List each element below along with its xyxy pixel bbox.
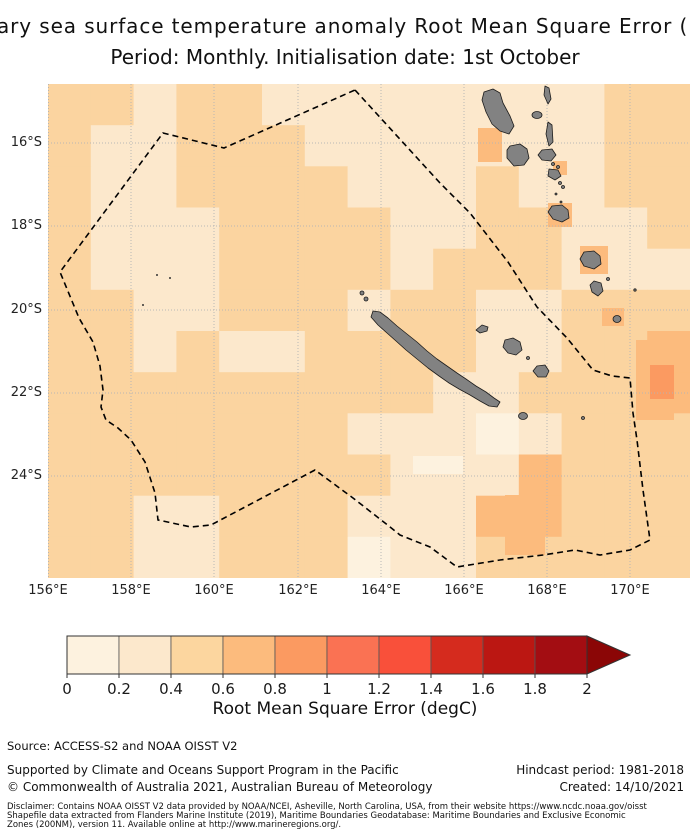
island-isle-of-pines	[519, 413, 528, 420]
lon-tick-170e: 170°E	[598, 583, 662, 599]
island-walpole	[582, 417, 585, 420]
island-aneityum	[613, 316, 621, 323]
lat-tick-16s: 16°S	[0, 135, 42, 151]
lat-tick-18s: 18°S	[0, 218, 42, 234]
svg-text:0.4: 0.4	[159, 680, 183, 698]
lon-tick-160e: 160°E	[182, 583, 246, 599]
lon-tick-168e: 168°E	[515, 583, 579, 599]
svg-text:1: 1	[322, 680, 332, 698]
created-date-text: Created: 14/10/2021	[559, 780, 684, 794]
colorbar-extend-arrow	[587, 636, 630, 674]
lat-tick-22s: 22°S	[0, 385, 42, 401]
island-ambae	[532, 112, 542, 119]
island-tiga	[527, 357, 530, 360]
svg-text:1.2: 1.2	[367, 680, 391, 698]
figure-title-line1: ary sea surface temperature anomaly Root…	[0, 14, 690, 38]
map-plot-area	[48, 84, 690, 578]
rmse-field-cells	[48, 84, 690, 578]
lon-tick-166e: 166°E	[432, 583, 496, 599]
figure-title-line2: Period: Monthly. Initialisation date: 1s…	[0, 45, 690, 69]
svg-text:2: 2	[582, 680, 592, 698]
lon-tick-158e: 158°E	[99, 583, 163, 599]
lon-tick-162e: 162°E	[266, 583, 330, 599]
svg-text:1.4: 1.4	[419, 680, 443, 698]
rmse-map	[48, 84, 690, 578]
svg-text:0.8: 0.8	[263, 680, 287, 698]
svg-text:0.2: 0.2	[107, 680, 131, 698]
supported-by-text: Supported by Climate and Oceans Support …	[7, 763, 399, 777]
svg-text:1.6: 1.6	[471, 680, 495, 698]
svg-text:1.8: 1.8	[523, 680, 547, 698]
svg-text:0: 0	[62, 680, 72, 698]
lon-tick-156e: 156°E	[16, 583, 80, 599]
island-aniwa	[607, 278, 610, 281]
lat-tick-20s: 20°S	[0, 302, 42, 318]
colorbar: 00.20.40.60.811.21.41.61.82	[0, 628, 690, 698]
colorbar-ticks: 00.20.40.60.811.21.41.61.82	[62, 674, 592, 698]
lat-tick-24s: 24°S	[0, 468, 42, 484]
colorbar-segments	[67, 636, 587, 674]
source-text: Source: ACCESS-S2 and NOAA OISST V2	[7, 739, 237, 753]
hindcast-period-text: Hindcast period: 1981-2018	[516, 763, 684, 777]
copyright-text: © Commonwealth of Australia 2021, Austra…	[7, 780, 432, 794]
svg-text:0.6: 0.6	[211, 680, 235, 698]
lon-tick-164e: 164°E	[349, 583, 413, 599]
colorbar-label: Root Mean Square Error (degC)	[0, 699, 690, 719]
figure-title-block: ary sea surface temperature anomaly Root…	[0, 14, 690, 80]
island-futuna	[634, 289, 636, 291]
disclaimer-line3: Zones (200NM), version 11. Available onl…	[7, 820, 341, 830]
